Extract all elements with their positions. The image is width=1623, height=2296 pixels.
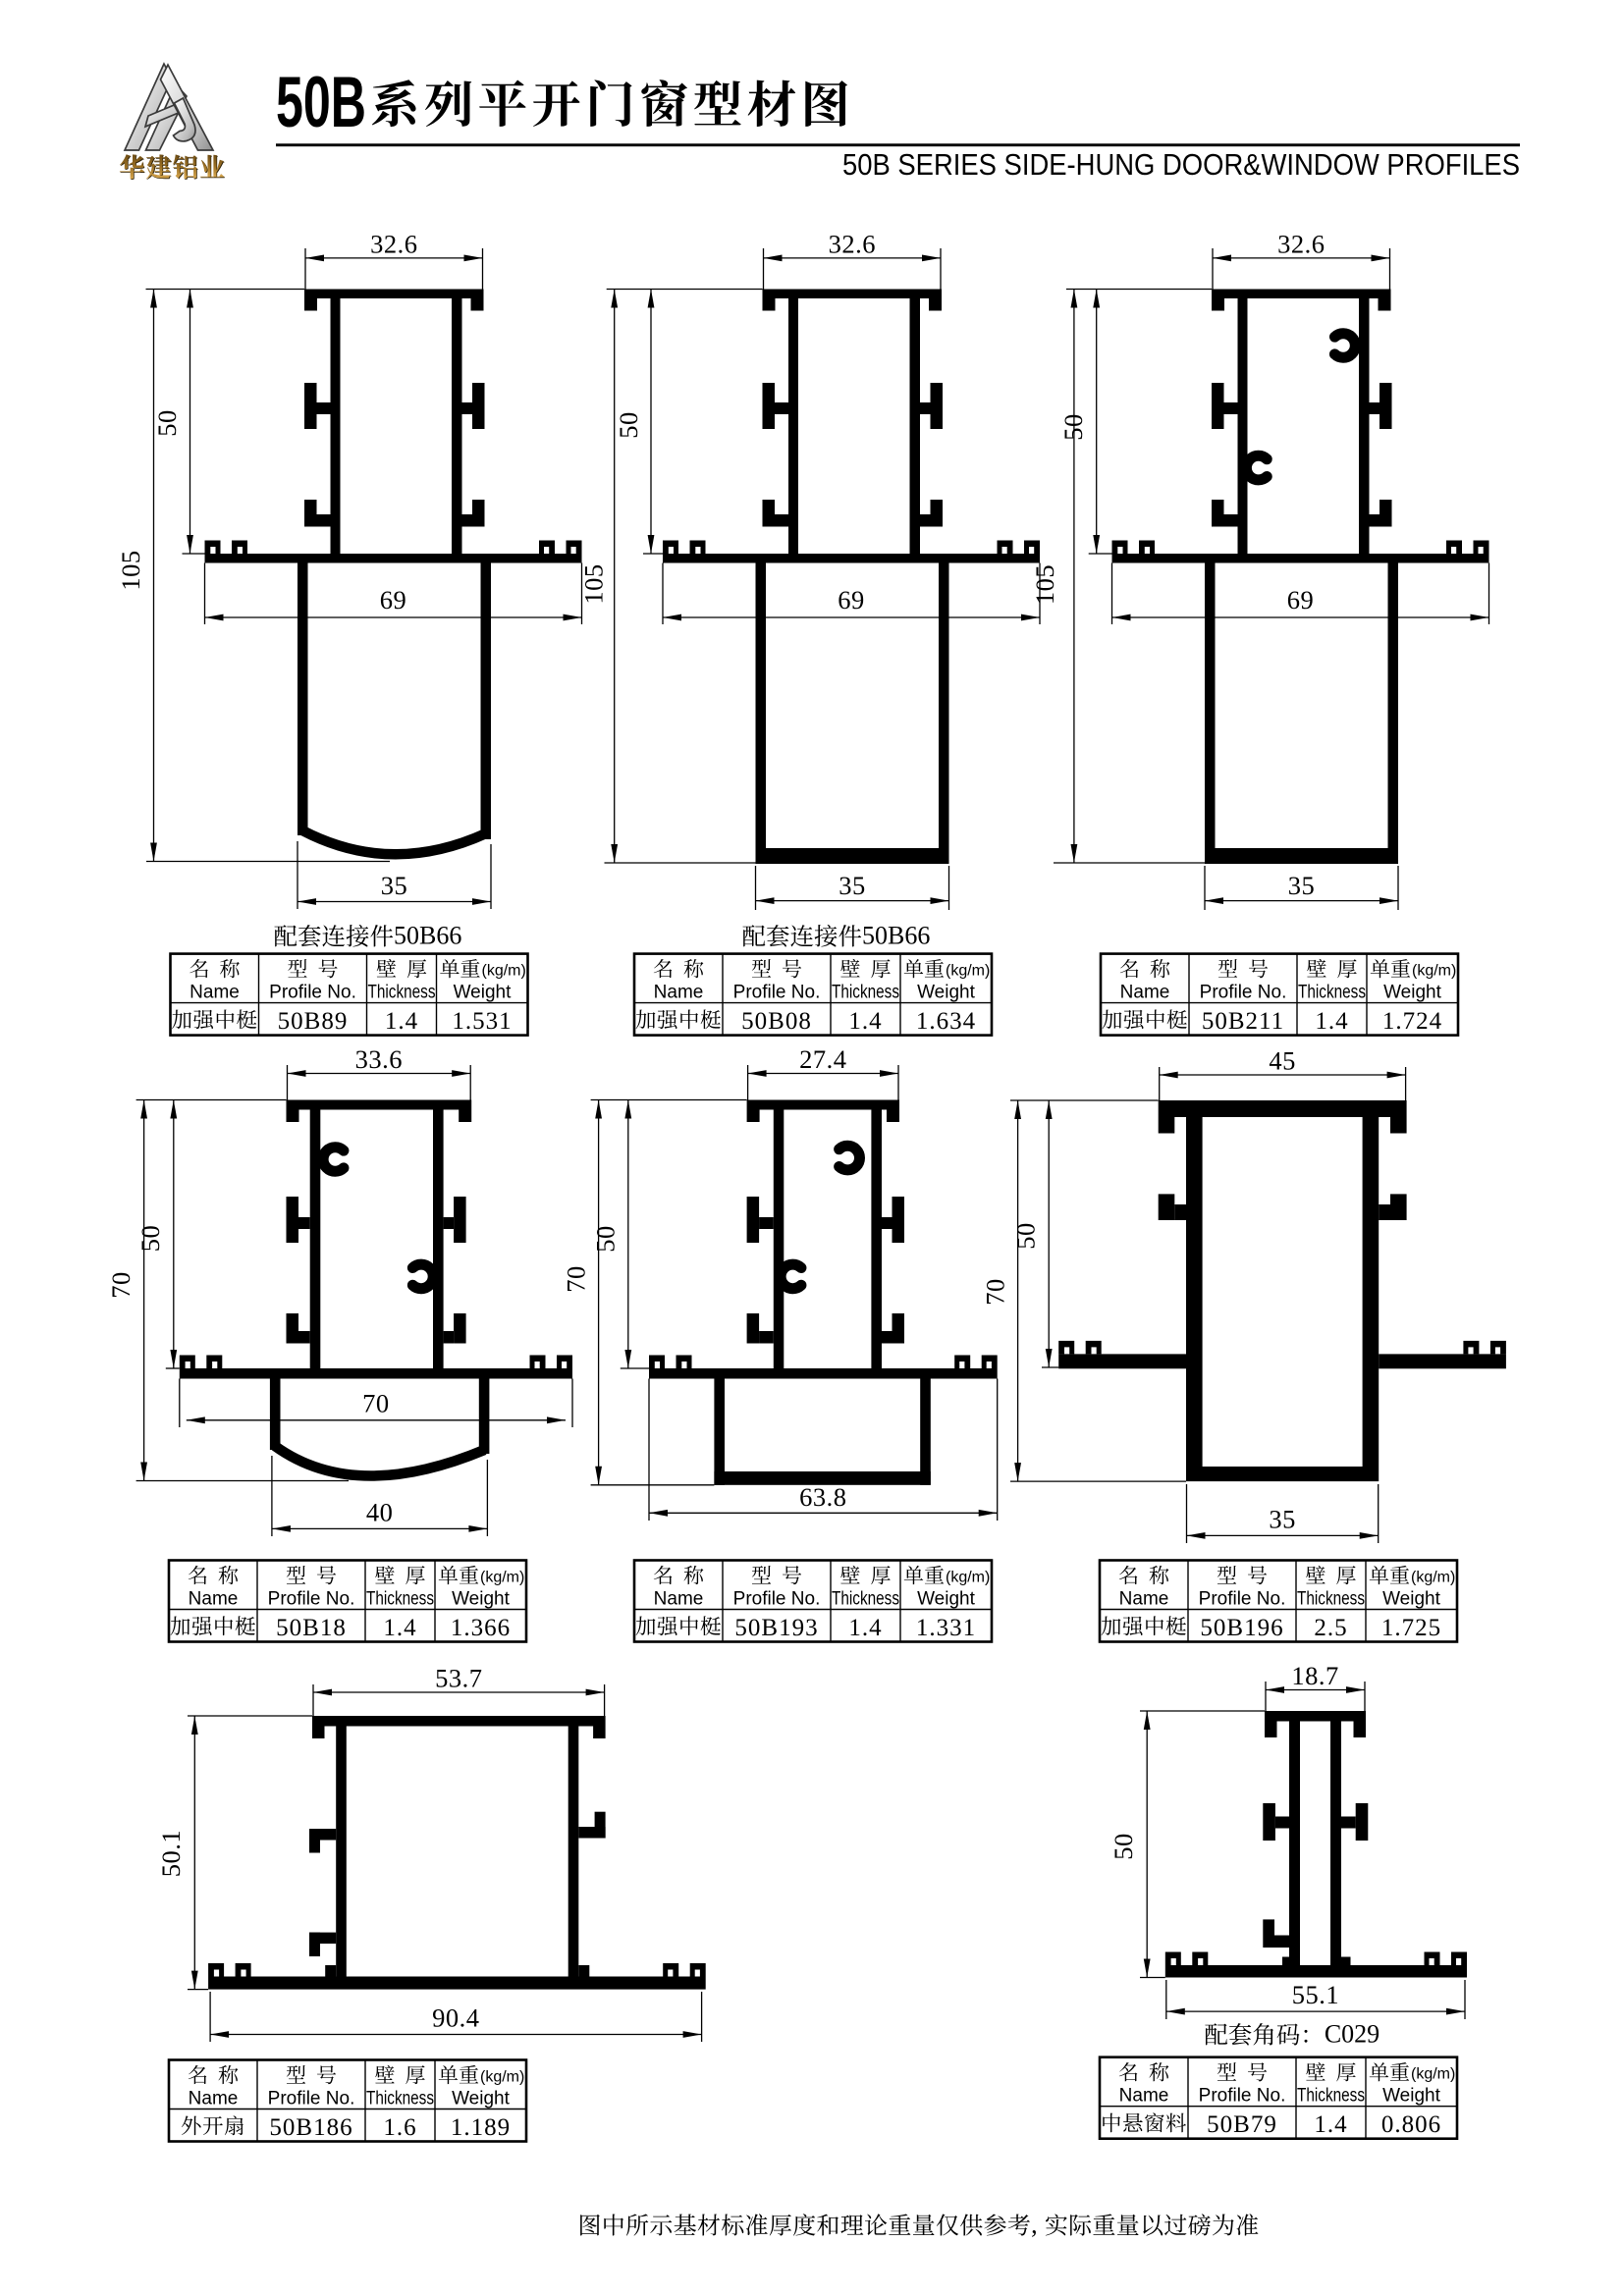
svg-text:50B196: 50B196 xyxy=(1200,1615,1283,1641)
svg-text:Weight: Weight xyxy=(917,1589,976,1610)
svg-text:50: 50 xyxy=(1109,1833,1138,1860)
svg-text:1.4: 1.4 xyxy=(1315,1008,1348,1035)
svg-text:90.4: 90.4 xyxy=(432,2003,479,2033)
svg-text:50B66: 50B66 xyxy=(862,922,930,950)
svg-text:50: 50 xyxy=(1011,1222,1041,1250)
svg-text:105: 105 xyxy=(1030,564,1059,605)
svg-text:50: 50 xyxy=(135,1225,165,1253)
svg-text:,: , xyxy=(1031,2211,1037,2239)
svg-text:70: 70 xyxy=(362,1389,390,1418)
svg-text:32.6: 32.6 xyxy=(370,229,417,258)
svg-text:Weight: Weight xyxy=(917,983,976,1003)
svg-text:(kg/m): (kg/m) xyxy=(482,963,526,980)
svg-text:32.6: 32.6 xyxy=(829,229,876,258)
svg-text:50.1: 50.1 xyxy=(156,1830,186,1877)
svg-text:Name: Name xyxy=(654,983,704,1003)
svg-text:Name: Name xyxy=(1119,1589,1169,1610)
svg-text:Profile No.: Profile No. xyxy=(1199,2086,1286,2107)
svg-text:Thickness: Thickness xyxy=(1297,1589,1365,1610)
svg-text:Name: Name xyxy=(189,2089,239,2109)
svg-text:Profile No.: Profile No. xyxy=(269,983,356,1003)
svg-text:50: 50 xyxy=(152,409,182,437)
svg-text:70: 70 xyxy=(106,1271,135,1299)
svg-text:Profile No.: Profile No. xyxy=(1199,1589,1286,1610)
svg-text:18.7: 18.7 xyxy=(1291,1661,1338,1690)
svg-text:Profile No.: Profile No. xyxy=(1200,983,1287,1003)
svg-text:Weight: Weight xyxy=(1383,983,1442,1003)
svg-text:Name: Name xyxy=(1119,2086,1169,2107)
svg-text:105: 105 xyxy=(116,550,145,590)
svg-text:1.6: 1.6 xyxy=(383,2114,416,2141)
svg-text:35: 35 xyxy=(381,871,408,900)
svg-text:Thickness: Thickness xyxy=(366,2089,434,2109)
svg-text:35: 35 xyxy=(1269,1505,1296,1534)
svg-text:50B66: 50B66 xyxy=(394,922,461,950)
svg-text:(kg/m): (kg/m) xyxy=(1411,2066,1455,2083)
svg-text:69: 69 xyxy=(838,585,865,614)
svg-text:Weight: Weight xyxy=(452,1589,511,1610)
svg-text:50B79: 50B79 xyxy=(1207,2111,1277,2138)
svg-text:70: 70 xyxy=(980,1278,1009,1306)
svg-text:Weight: Weight xyxy=(1382,2086,1441,2107)
svg-text:1.724: 1.724 xyxy=(1382,1008,1442,1035)
svg-text:Thickness: Thickness xyxy=(366,1589,434,1610)
svg-text:45: 45 xyxy=(1269,1046,1296,1076)
svg-text:Thickness: Thickness xyxy=(832,1589,899,1610)
svg-text:C029: C029 xyxy=(1325,2020,1380,2049)
svg-text:1.4: 1.4 xyxy=(383,1615,416,1641)
svg-text:1.725: 1.725 xyxy=(1381,1615,1441,1641)
svg-text:27.4: 27.4 xyxy=(799,1044,846,1074)
svg-text:Profile No.: Profile No. xyxy=(268,1589,355,1610)
svg-text:(kg/m): (kg/m) xyxy=(946,1570,990,1586)
svg-text:1.634: 1.634 xyxy=(916,1008,976,1035)
svg-text:Name: Name xyxy=(189,983,240,1003)
svg-text:Weight: Weight xyxy=(452,2089,511,2109)
svg-text:35: 35 xyxy=(1288,871,1316,900)
svg-text:Name: Name xyxy=(1120,983,1170,1003)
svg-text:(kg/m): (kg/m) xyxy=(480,1570,524,1586)
svg-text:50B186: 50B186 xyxy=(269,2114,352,2141)
svg-text:50B08: 50B08 xyxy=(741,1008,812,1035)
svg-text:Thickness: Thickness xyxy=(1298,983,1366,1003)
svg-text:50B: 50B xyxy=(276,63,366,142)
svg-text:53.7: 53.7 xyxy=(435,1664,482,1693)
svg-text:0.806: 0.806 xyxy=(1381,2111,1441,2138)
svg-text:1.366: 1.366 xyxy=(451,1615,511,1641)
svg-text:Profile No.: Profile No. xyxy=(733,1589,821,1610)
svg-text:69: 69 xyxy=(380,585,407,614)
svg-text:50: 50 xyxy=(591,1225,621,1253)
svg-text:Profile No.: Profile No. xyxy=(733,983,821,1003)
svg-text:Name: Name xyxy=(189,1589,239,1610)
svg-text:33.6: 33.6 xyxy=(355,1044,403,1074)
svg-text:Thickness: Thickness xyxy=(832,983,899,1003)
svg-text:69: 69 xyxy=(1287,585,1315,614)
svg-text:50B193: 50B193 xyxy=(734,1615,818,1641)
svg-text:Thickness: Thickness xyxy=(368,983,436,1003)
svg-text:50: 50 xyxy=(614,411,643,439)
svg-text:1.4: 1.4 xyxy=(848,1615,882,1641)
svg-text:1.4: 1.4 xyxy=(1314,2111,1347,2138)
svg-text:105: 105 xyxy=(579,563,609,604)
svg-text:63.8: 63.8 xyxy=(799,1482,846,1512)
svg-text:1.531: 1.531 xyxy=(452,1008,512,1035)
svg-text:50B211: 50B211 xyxy=(1202,1008,1284,1035)
svg-text:Profile No.: Profile No. xyxy=(268,2089,355,2109)
svg-text:40: 40 xyxy=(366,1498,394,1527)
svg-text:(kg/m): (kg/m) xyxy=(480,2069,524,2086)
svg-text:50B89: 50B89 xyxy=(278,1008,349,1035)
svg-text:1.4: 1.4 xyxy=(385,1008,418,1035)
svg-text:1.189: 1.189 xyxy=(451,2114,511,2141)
svg-text:(kg/m): (kg/m) xyxy=(1411,1570,1455,1586)
svg-text:70: 70 xyxy=(561,1265,590,1293)
svg-text:(kg/m): (kg/m) xyxy=(946,963,990,980)
svg-text:32.6: 32.6 xyxy=(1277,229,1325,258)
svg-text:Weight: Weight xyxy=(454,983,513,1003)
svg-text:2.5: 2.5 xyxy=(1314,1615,1347,1641)
svg-text:Thickness: Thickness xyxy=(1297,2086,1365,2107)
svg-text:1.4: 1.4 xyxy=(848,1008,882,1035)
svg-text:50B SERIES SIDE-HUNG DOOR&WIND: 50B SERIES SIDE-HUNG DOOR&WINDOW PROFILE… xyxy=(842,148,1520,182)
svg-text:55.1: 55.1 xyxy=(1292,1980,1339,2009)
svg-text:Name: Name xyxy=(654,1589,704,1610)
svg-text:50B18: 50B18 xyxy=(276,1615,347,1641)
svg-text:50: 50 xyxy=(1058,413,1088,441)
svg-text:35: 35 xyxy=(839,871,866,900)
svg-text:Weight: Weight xyxy=(1382,1589,1441,1610)
svg-text:(kg/m): (kg/m) xyxy=(1412,963,1456,980)
svg-text:1.331: 1.331 xyxy=(916,1615,976,1641)
